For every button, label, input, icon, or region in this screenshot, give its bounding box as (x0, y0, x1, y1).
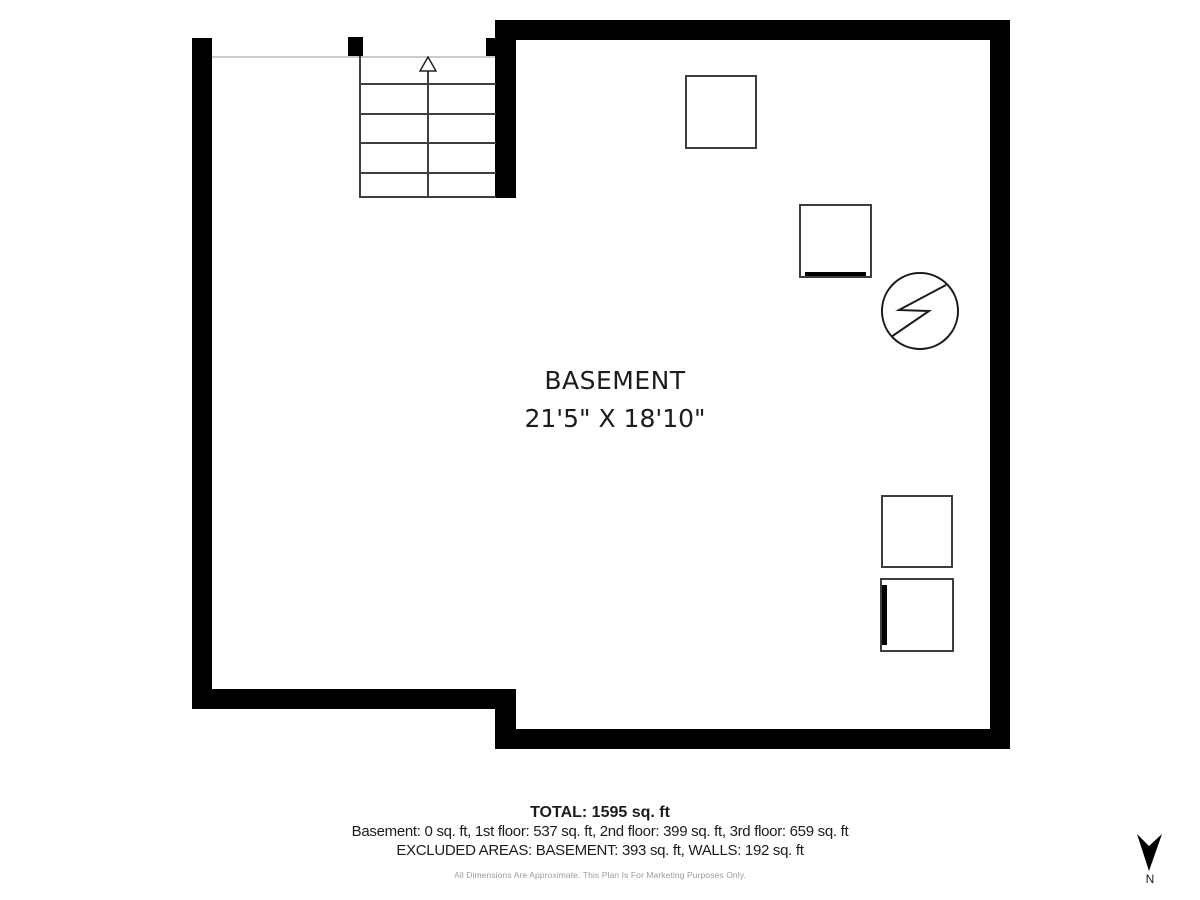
square-fixture-right-upper (881, 495, 953, 568)
utility-circle-icon (880, 271, 960, 351)
floor-plan-canvas: BASEMENT 21'5" X 18'10" TOTAL: 1595 sq. … (0, 0, 1200, 900)
wall-post-stair (486, 38, 495, 57)
wall-right (990, 20, 1010, 749)
room-name: BASEMENT (415, 362, 815, 400)
floor-areas-text: Basement: 0 sq. ft, 1st floor: 537 sq. f… (0, 822, 1200, 841)
wall-post-middle (348, 37, 363, 57)
wall-bottom-left (192, 689, 516, 709)
fixture-element-bar (805, 272, 866, 276)
square-fixture-top (685, 75, 757, 149)
staircase (359, 56, 496, 198)
area-summary: TOTAL: 1595 sq. ft Basement: 0 sq. ft, 1… (0, 803, 1200, 880)
room-label: BASEMENT 21'5" X 18'10" (415, 362, 815, 438)
north-label: N (1136, 872, 1164, 886)
room-dimensions: 21'5" X 18'10" (415, 400, 815, 438)
fixture-element-bar (882, 585, 887, 645)
square-fixture-right-lower (880, 578, 954, 652)
total-area-text: TOTAL: 1595 sq. ft (0, 803, 1200, 822)
stair-direction-line (427, 70, 429, 198)
square-fixture-mid (799, 204, 872, 278)
disclaimer-text: All Dimensions Are Approximate. This Pla… (0, 870, 1200, 880)
wall-left (192, 38, 212, 709)
excluded-areas-text: EXCLUDED AREAS: BASEMENT: 393 sq. ft, WA… (0, 841, 1200, 860)
up-arrow-icon (419, 56, 437, 72)
north-arrow-icon (1136, 833, 1164, 873)
wall-top (495, 20, 1010, 40)
wall-bottom-right (495, 729, 1010, 749)
wall-stairwell-right (495, 20, 516, 198)
stair-left-edge (359, 56, 361, 198)
